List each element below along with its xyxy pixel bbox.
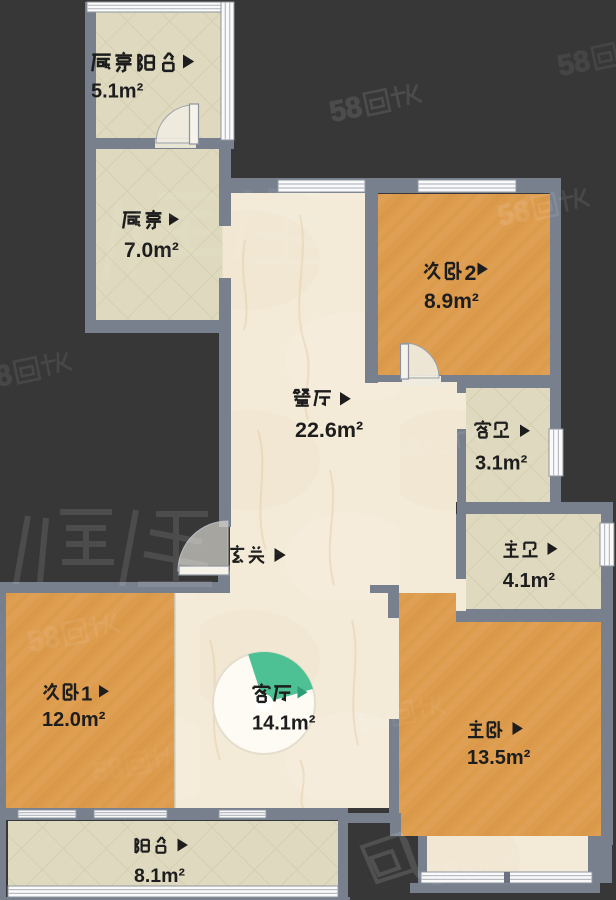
svg-text:1: 1	[81, 684, 92, 706]
svg-text:22.6m²: 22.6m²	[295, 418, 363, 442]
svg-text:12.0m²: 12.0m²	[42, 709, 106, 731]
svg-text:5.1m²: 5.1m²	[91, 81, 144, 103]
svg-text:14.1m²: 14.1m²	[252, 713, 316, 735]
svg-text:8.9m²: 8.9m²	[424, 290, 479, 313]
svg-text:13.5m²: 13.5m²	[467, 747, 531, 769]
svg-text:4.1m²: 4.1m²	[503, 570, 556, 592]
svg-text:8.1m²: 8.1m²	[134, 865, 185, 887]
svg-text:2: 2	[465, 261, 477, 285]
svg-text:3.1m²: 3.1m²	[475, 453, 528, 475]
